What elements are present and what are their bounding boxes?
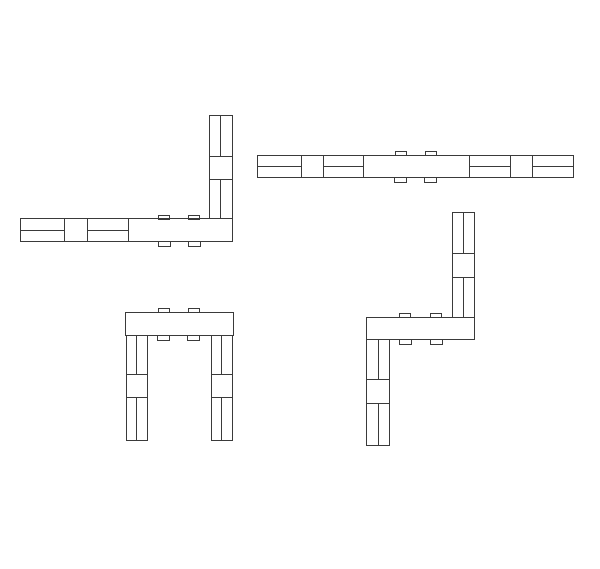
side-view-bottom-right-peg-tab-bottom-1 xyxy=(400,340,412,345)
long-beam-view-top-right-peg-tab-top-2 xyxy=(426,152,437,156)
side-view-bottom-right-seat-beam xyxy=(367,318,475,340)
side-view-bottom-right xyxy=(367,213,475,446)
front-view-bottom-left-peg-tab-top-2 xyxy=(189,309,200,313)
long-beam-view-top-right-peg-tab-bottom-2 xyxy=(425,178,437,183)
long-beam-view-top-right xyxy=(258,152,574,183)
front-view-bottom-left-peg-tab-bottom-1 xyxy=(158,336,170,341)
corner-view-top-left xyxy=(21,116,233,247)
long-beam-view-top-right-peg-tab-top-1 xyxy=(396,152,407,156)
corner-view-top-left-peg-tab-bottom-1 xyxy=(159,242,171,247)
side-view-bottom-right-peg-tab-top-2 xyxy=(431,314,442,318)
drawing-canvas xyxy=(0,0,600,569)
front-view-bottom-left-peg-tab-bottom-2 xyxy=(188,336,200,341)
side-view-bottom-right-peg-tab-top-1 xyxy=(400,314,411,318)
front-view-bottom-left xyxy=(126,309,234,441)
side-view-bottom-right-peg-tab-bottom-2 xyxy=(431,340,443,345)
front-view-bottom-left-top-beam xyxy=(126,313,234,336)
front-view-bottom-left-peg-tab-top-1 xyxy=(159,309,170,313)
long-beam-view-top-right-peg-tab-bottom-1 xyxy=(395,178,407,183)
cad-drawing-svg xyxy=(0,0,600,569)
long-beam-view-top-right-beam xyxy=(258,156,574,178)
corner-view-top-left-peg-tab-bottom-2 xyxy=(189,242,201,247)
